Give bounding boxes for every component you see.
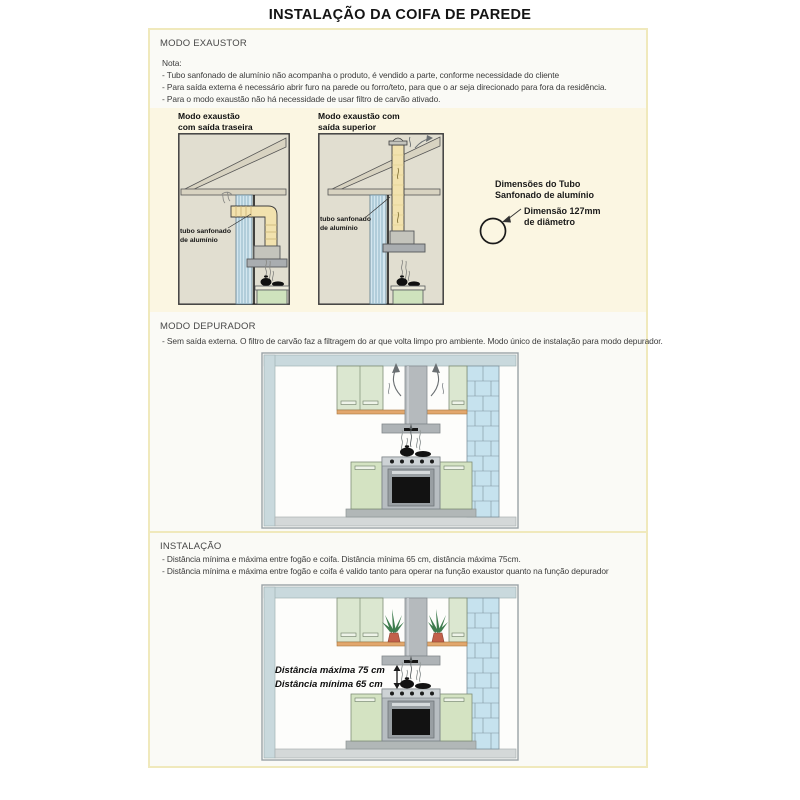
ceiling-band [264, 355, 516, 366]
instalacao-note-2: - Distância mínima e máxima entre fogão … [162, 566, 609, 576]
rear-exit-title: Modo exaustão com saída traseira [178, 111, 253, 132]
floor [275, 517, 516, 526]
distance-max-label: Distância máxima 75 cm [275, 665, 385, 676]
exaustor-heading: MODO EXAUSTOR [160, 38, 247, 49]
top-exit-title: Modo exaustão com saída superior [318, 111, 400, 132]
pipe-label: tubo sanfonado [320, 216, 371, 223]
plinth [346, 509, 476, 517]
exaustor-note-3: - Para o modo exaustão não há necessidad… [162, 94, 440, 104]
stove-icon [255, 286, 289, 304]
tube-diameter-value: Dimensão 127mm [524, 206, 601, 216]
depurador-heading: MODO DEPURADOR [160, 321, 256, 332]
tube-dimensions-title: Dimensões do Tubo Sanfonado de alumínio [495, 179, 594, 201]
pointer-line [508, 209, 521, 219]
stove-icon [382, 689, 440, 741]
tube-diameter-value: de diâmetro [524, 217, 576, 227]
page-title: INSTALAÇÃO DA COIFA DE PAREDE [0, 7, 800, 23]
distance-min-label: Distância mínima 65 cm [275, 679, 383, 690]
top-exit-diagram: tubo sanfonado de alumínio [318, 133, 444, 305]
pipe-label: de alumínio [320, 225, 358, 232]
exaustor-note-1: - Tubo sanfonado de alumínio não acompan… [162, 70, 559, 80]
installation-distance-illustration: Distância máxima 75 cm Distância mínima … [261, 584, 519, 761]
section-divider [150, 531, 646, 533]
exaustor-note-2: - Para saída externa é necessário abrir … [162, 82, 607, 92]
floor [275, 749, 516, 758]
content-box: MODO EXAUSTOR Nota: - Tubo sanfonado de … [148, 28, 648, 768]
pipe-label: tubo sanfonado [180, 228, 231, 235]
plinth [346, 741, 476, 749]
stove-icon [391, 286, 425, 304]
note-label: Nota: [162, 58, 182, 68]
tube-circle-icon [481, 219, 506, 244]
tube-diameter-diagram: Dimensão 127mm de diâmetro [472, 202, 642, 257]
left-wall-band [264, 355, 275, 526]
instalacao-heading: INSTALAÇÃO [160, 541, 221, 552]
arrowhead-icon [502, 216, 511, 223]
instalacao-note-1: - Distância mínima e máxima entre fogão … [162, 554, 521, 564]
stove-icon [382, 457, 440, 509]
depurador-note-1: - Sem saída externa. O filtro de carvão … [162, 336, 663, 346]
pipe-label: de alumínio [180, 237, 218, 244]
left-wall-band [264, 587, 275, 758]
ceiling-band [264, 587, 516, 598]
depurador-kitchen-illustration [261, 352, 519, 529]
rear-exit-diagram: tubo sanfonado de alumínio [178, 133, 290, 305]
